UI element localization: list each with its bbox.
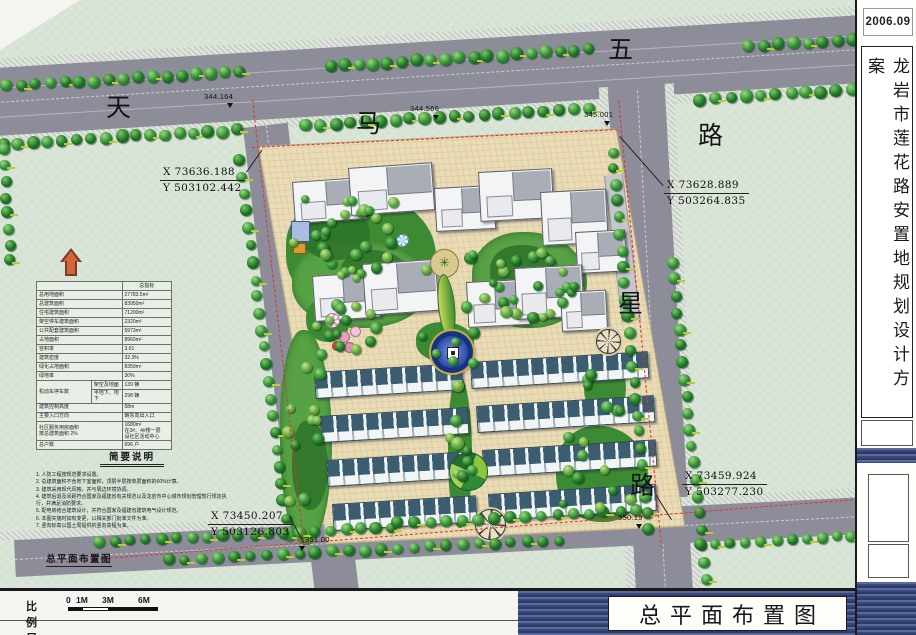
- tree-icon: [253, 308, 264, 319]
- tree-icon: [557, 297, 568, 308]
- indicator-sublabel: 半地下、地下: [91, 390, 122, 404]
- scalebar-segment: [82, 607, 110, 611]
- tree-icon: [0, 193, 11, 204]
- tree-icon: [511, 255, 521, 265]
- drawing-title-box: 总平面布置图: [608, 596, 847, 631]
- tree-icon: [344, 117, 355, 128]
- tree-icon: [496, 50, 509, 63]
- tree-icon: [263, 376, 275, 388]
- indicator-value: 32.3%: [122, 354, 171, 363]
- hedge-icon: [433, 548, 441, 550]
- titleblock-cell: [868, 474, 909, 542]
- tree-icon: [3, 224, 14, 235]
- hedge-icon: [242, 73, 250, 75]
- elevation-label: 351.00: [305, 535, 330, 544]
- tree-icon: [265, 394, 276, 405]
- tree-icon: [816, 36, 828, 48]
- coordinate-callout: X 73628.889 Y 503264.835: [664, 179, 749, 208]
- tree-icon: [333, 330, 341, 338]
- tree-icon: [301, 362, 312, 373]
- building-roof: [570, 191, 606, 224]
- indicator-sublabel: 架空及地面: [91, 381, 122, 390]
- titleblock-cell: [861, 420, 913, 446]
- tree-icon: [536, 248, 547, 259]
- hedge-icon: [272, 384, 280, 386]
- indicator-value: 朝东向出入口: [122, 412, 171, 421]
- tree-icon: [72, 76, 84, 88]
- title-band: 总平面布置图: [518, 591, 855, 635]
- hedge-icon: [616, 170, 624, 172]
- tree-icon: [289, 238, 298, 247]
- indicators-table: 总指标总用地面积27783.5m²总建筑面积83950m²住宅建筑面积71200…: [36, 281, 172, 450]
- elevation-tick-icon: [604, 121, 610, 126]
- notes-title: 简要说明: [100, 449, 164, 467]
- hedge-icon: [718, 100, 726, 102]
- tree-icon: [190, 67, 202, 79]
- road-label-ma: 马: [356, 104, 381, 140]
- tree-icon: [724, 538, 734, 548]
- tree-icon: [45, 77, 56, 88]
- project-title-box: 龙岩市莲花路安置地规划设计方案: [861, 46, 913, 418]
- tree-icon: [479, 109, 491, 121]
- hedge-icon: [683, 332, 691, 334]
- tree-icon: [245, 551, 255, 561]
- tree-icon: [1, 206, 13, 218]
- tree-icon: [41, 136, 53, 148]
- tree-icon: [382, 223, 393, 234]
- tree-icon: [424, 54, 436, 66]
- tree-icon: [27, 136, 40, 149]
- tree-icon: [817, 532, 829, 544]
- building-step: [371, 288, 399, 312]
- sidebar-band: [857, 448, 916, 463]
- compass-roundel: [596, 329, 621, 354]
- date-label: 2006.09: [865, 16, 910, 28]
- note-line: 2. 总建筑面积不含地下室面积，顶层半层按单层面积的60%计算。: [36, 479, 228, 486]
- hedge-icon: [109, 141, 117, 143]
- tree-icon: [539, 313, 547, 321]
- tree-icon: [313, 416, 322, 425]
- tree-icon: [201, 125, 214, 138]
- indicator-value: 8350m²: [122, 363, 171, 372]
- tree-icon: [308, 546, 320, 558]
- elevation-tick-icon: [433, 115, 439, 120]
- tree-icon: [360, 241, 371, 252]
- elevation-label: 350.19: [618, 513, 643, 522]
- tree-icon: [100, 132, 113, 145]
- tree-icon: [693, 94, 706, 107]
- tree-icon: [451, 437, 464, 450]
- building-roof: [386, 164, 431, 195]
- coordinate-y: Y 503264.835: [664, 194, 749, 208]
- hedge-icon: [240, 131, 248, 133]
- tree-icon: [171, 532, 181, 542]
- tree-icon: [312, 433, 324, 445]
- tree-icon: [392, 544, 403, 555]
- tree-icon: [418, 112, 431, 125]
- tree-icon: [260, 358, 272, 370]
- sidebar-band: [857, 582, 916, 635]
- tree-icon: [1, 176, 13, 188]
- tree-icon: [522, 535, 534, 547]
- tree-icon: [312, 322, 320, 330]
- tree-icon: [251, 290, 262, 301]
- tree-icon: [196, 553, 207, 564]
- hedge-icon: [635, 368, 643, 370]
- elevation-label: 345.001: [584, 110, 613, 119]
- elevation-label: 344.164: [204, 92, 233, 101]
- tree-icon: [103, 74, 115, 86]
- tree-icon: [85, 133, 96, 144]
- tree-icon: [298, 493, 310, 505]
- coordinate-x: X 73628.889: [664, 179, 749, 194]
- hedge-icon: [251, 230, 259, 232]
- tree-icon: [615, 406, 625, 416]
- indicator-value: 3.01: [122, 345, 171, 354]
- building-step: [581, 251, 600, 270]
- tree-icon: [617, 261, 629, 273]
- indicator-label: 建筑控制高度: [37, 403, 123, 412]
- indicator-label: 主要入口方向: [37, 412, 123, 421]
- tree-icon: [461, 301, 472, 312]
- tree-icon: [348, 266, 356, 274]
- hedge-icon: [501, 115, 509, 117]
- tree-icon: [492, 107, 504, 119]
- tree-icon: [668, 272, 680, 284]
- indicator-value: 83950m²: [122, 300, 171, 309]
- indicator-label: 机动车停车数: [37, 381, 92, 404]
- tree-icon: [369, 522, 381, 534]
- title-block-sidebar: 2006.09 龙岩市莲花路安置地规划设计方案: [855, 0, 916, 635]
- scalebar-segment: [68, 607, 82, 611]
- hedge-icon: [259, 283, 267, 285]
- building-step: [486, 195, 514, 218]
- indicator-label: 绿地率: [37, 372, 123, 381]
- tree-icon: [421, 265, 431, 275]
- hedge-icon: [561, 517, 569, 519]
- tree-icon: [676, 356, 688, 368]
- tree-icon: [846, 83, 855, 96]
- indicator-label: 架空停车建筑面积: [37, 318, 123, 327]
- hedge-icon: [283, 485, 291, 487]
- hedge-icon: [10, 214, 18, 216]
- road-label-tian: 天: [106, 88, 131, 124]
- note-line: 4. 建筑后退及间距符合国家及福建省有关规范以及龙岩市中心城市规划管理暂行规定执…: [36, 494, 228, 509]
- tree-icon: [132, 71, 144, 83]
- tree-icon: [130, 129, 142, 141]
- building-roof: [580, 292, 605, 316]
- tree-icon: [147, 70, 160, 83]
- tree-icon: [769, 88, 782, 101]
- coordinate-x: X 73459.924: [682, 470, 767, 485]
- tree-icon: [585, 369, 597, 381]
- hedge-icon: [641, 418, 649, 420]
- residential-building: [560, 290, 608, 332]
- tree-icon: [366, 309, 376, 319]
- indicator-value: 8960m²: [122, 336, 171, 345]
- tree-icon: [314, 119, 327, 132]
- hedge-icon: [705, 532, 713, 534]
- indicator-label: 公共配套建筑面积: [37, 327, 123, 336]
- tree-icon: [351, 344, 362, 355]
- tree-icon: [267, 410, 278, 421]
- tree-icon: [255, 325, 267, 337]
- hedge-icon: [384, 551, 392, 553]
- tree-icon: [396, 56, 408, 68]
- indicator-value: 139 辆: [122, 381, 171, 390]
- tree-icon: [320, 249, 331, 260]
- tree-icon: [228, 551, 240, 563]
- road-label-wu: 五: [608, 30, 633, 66]
- tree-icon: [480, 49, 494, 63]
- tree-icon: [522, 106, 534, 118]
- coordinate-callout: X 73636.188 Y 503102.442: [160, 166, 245, 195]
- tree-icon: [468, 327, 480, 339]
- hedge-icon: [546, 114, 554, 116]
- note-line: 6. 本图实施时如有变更，以相关部门批准文件为准。: [36, 516, 228, 523]
- tree-icon: [787, 36, 800, 49]
- tree-icon: [343, 545, 355, 557]
- tree-icon: [667, 257, 679, 269]
- tree-icon: [510, 308, 522, 320]
- hedge-icon: [626, 268, 634, 270]
- tree-icon: [277, 548, 289, 560]
- hedge-icon: [264, 333, 272, 335]
- scalebar-segment: [108, 607, 158, 611]
- tree-icon: [390, 114, 403, 127]
- tree-icon: [688, 456, 700, 468]
- tree-icon: [740, 537, 751, 548]
- tree-icon: [403, 112, 415, 124]
- tree-icon: [233, 154, 245, 166]
- tree-icon: [829, 84, 842, 97]
- tree-icon: [247, 256, 259, 268]
- tree-icon: [341, 315, 351, 325]
- drawing-label: 总平面布置图: [46, 551, 112, 567]
- strip-rule: [0, 620, 518, 621]
- tree-icon: [426, 517, 437, 528]
- scalebar-label: 比例尺: [26, 598, 38, 635]
- tree-icon: [240, 204, 252, 216]
- building-step: [300, 200, 327, 220]
- tree-icon: [382, 252, 393, 263]
- scalebar-tick: 1M: [76, 595, 88, 605]
- tree-icon: [563, 432, 574, 443]
- elevation-tick-icon: [299, 546, 305, 551]
- fountain-core-dot: [451, 351, 455, 355]
- scalebar-tick: 3M: [102, 595, 114, 605]
- tree-icon: [330, 118, 343, 131]
- tree-icon: [642, 507, 654, 519]
- road-label-xing: 星: [618, 284, 643, 320]
- date-box: 2006.09: [863, 8, 913, 36]
- tree-icon: [814, 86, 827, 99]
- tree-icon: [216, 126, 229, 139]
- indicator-label: 容积率: [37, 345, 123, 354]
- tree-icon: [144, 129, 156, 141]
- notes-list: 1. 人防工程按规范要求设置。2. 总建筑面积不含地下室面积，顶层半层按单层面积…: [36, 472, 228, 530]
- note-line: 7. 竖向标高以国土局提供的竖向高程为准。: [36, 523, 228, 530]
- tree-icon: [340, 210, 350, 220]
- hedge-icon: [692, 432, 700, 434]
- tree-icon: [678, 374, 691, 387]
- hedge-icon: [335, 553, 343, 555]
- tree-icon: [489, 538, 501, 550]
- tree-icon: [457, 539, 468, 550]
- tree-icon: [450, 415, 462, 427]
- tree-icon: [359, 545, 370, 556]
- tree-icon: [613, 229, 625, 241]
- indicator-label: 社区服务用房面积 按总建筑面积 2%: [37, 421, 123, 441]
- tree-icon: [350, 249, 362, 261]
- tree-icon: [380, 57, 393, 70]
- hedge-icon: [210, 539, 218, 541]
- indicator-value: 298 辆: [122, 390, 171, 404]
- tree-icon: [299, 119, 312, 132]
- tree-icon: [261, 550, 271, 560]
- tree-icon: [787, 534, 798, 545]
- tree-icon: [231, 123, 243, 135]
- hedge-icon: [237, 559, 245, 561]
- tree-icon: [488, 512, 500, 524]
- elevation-label: 344.566: [410, 104, 439, 113]
- tree-icon: [726, 92, 737, 103]
- tree-icon: [709, 92, 721, 104]
- note-line: 3. 建筑采用现代风格，并与周边环境协调。: [36, 487, 228, 494]
- tree-icon: [509, 295, 518, 304]
- tree-icon: [845, 531, 855, 543]
- tree-icon: [117, 73, 129, 85]
- tree-icon: [274, 461, 286, 473]
- tree-icon: [370, 322, 382, 334]
- tree-icon: [467, 465, 477, 475]
- tree-icon: [0, 143, 10, 155]
- hedge-icon: [7, 167, 15, 169]
- tree-icon: [671, 291, 682, 302]
- tree-icon: [11, 138, 24, 151]
- indicator-label: 占地面积: [37, 336, 123, 345]
- coordinate-y: Y 503277.230: [682, 485, 767, 499]
- tree-icon: [56, 135, 68, 147]
- tree-icon: [553, 104, 565, 116]
- hedge-icon: [394, 530, 402, 532]
- tree-icon: [5, 240, 16, 251]
- tree-icon: [371, 213, 381, 223]
- tree-icon: [452, 380, 463, 391]
- parasol-icon: [396, 234, 409, 247]
- tree-icon: [140, 534, 150, 544]
- tree-icon: [600, 465, 609, 474]
- hedge-icon: [12, 262, 20, 264]
- tree-icon: [579, 437, 589, 447]
- tree-icon: [635, 443, 646, 454]
- tree-icon: [786, 87, 798, 99]
- tree-icon: [468, 250, 477, 259]
- tree-icon: [569, 282, 579, 292]
- tree-icon: [337, 271, 345, 279]
- elevation-tick-icon: [227, 103, 233, 108]
- scalebar-tick: 6M: [138, 595, 150, 605]
- tree-icon: [686, 441, 696, 451]
- hedge-icon: [187, 562, 195, 564]
- tree-icon: [595, 502, 606, 513]
- tree-icon: [568, 45, 580, 57]
- tree-icon: [159, 130, 171, 142]
- indicator-label: 绿化占地面积: [37, 363, 123, 372]
- tree-icon: [601, 401, 613, 413]
- tree-icon: [772, 535, 783, 546]
- tree-icon: [418, 332, 427, 341]
- tree-icon: [608, 148, 619, 159]
- tree-icon: [682, 391, 693, 402]
- tree-icon: [309, 405, 319, 415]
- tree-icon: [832, 531, 842, 541]
- sheet-corner: [0, 0, 80, 50]
- tree-icon: [451, 338, 460, 347]
- hedge-icon: [245, 179, 253, 181]
- tree-icon: [630, 377, 641, 388]
- tree-icon: [432, 349, 440, 357]
- indicator-value: 27783.5m²: [122, 291, 171, 300]
- road-label-lu2: 路: [630, 466, 655, 502]
- indicator-value: 30%: [122, 372, 171, 381]
- tree-icon: [510, 47, 523, 60]
- tree-icon: [375, 543, 388, 556]
- tree-icon: [364, 206, 373, 215]
- building-step: [566, 310, 584, 328]
- tree-icon: [572, 472, 584, 484]
- tree-icon: [335, 303, 346, 314]
- tree-icon: [846, 33, 855, 46]
- hedge-icon: [64, 143, 72, 145]
- hedge-icon: [687, 382, 695, 384]
- indicator-label: 住宅建筑面积: [37, 309, 123, 318]
- indicator-label: 总用地面积: [37, 291, 123, 300]
- tree-icon: [391, 516, 403, 528]
- hedge-icon: [286, 556, 294, 558]
- flower-bed: [350, 326, 361, 337]
- tree-icon: [463, 111, 474, 122]
- project-title: 龙岩市莲花路安置地规划设计方案: [862, 57, 912, 413]
- tree-icon: [242, 222, 254, 234]
- hedge-icon: [606, 514, 614, 516]
- tree-icon: [156, 533, 168, 545]
- hedge-icon: [417, 524, 425, 526]
- plan-sheet: ✳ 天 马 路 五 星 路 344.164 344.566: [0, 0, 916, 635]
- tree-icon: [4, 254, 16, 266]
- tree-icon: [219, 66, 230, 77]
- tree-icon: [634, 425, 645, 436]
- indicator-value: 58m: [122, 403, 171, 412]
- tree-icon: [366, 58, 379, 71]
- tree-icon: [71, 134, 82, 145]
- building-step: [548, 217, 573, 241]
- hedge-icon: [709, 581, 717, 583]
- tree-icon: [758, 40, 770, 52]
- coordinate-x: X 73636.188: [160, 166, 245, 181]
- tree-icon: [832, 35, 844, 47]
- tree-icon: [259, 341, 269, 351]
- indicator-value: 2320m²: [122, 318, 171, 327]
- tree-icon: [163, 553, 175, 565]
- tree-icon: [610, 179, 622, 191]
- hedge-icon: [677, 280, 685, 282]
- tree-icon: [545, 256, 555, 266]
- tree-icon: [625, 345, 636, 356]
- coordinate-y: Y 503102.442: [160, 181, 245, 195]
- building-step: [441, 208, 464, 228]
- tree-icon: [527, 312, 538, 323]
